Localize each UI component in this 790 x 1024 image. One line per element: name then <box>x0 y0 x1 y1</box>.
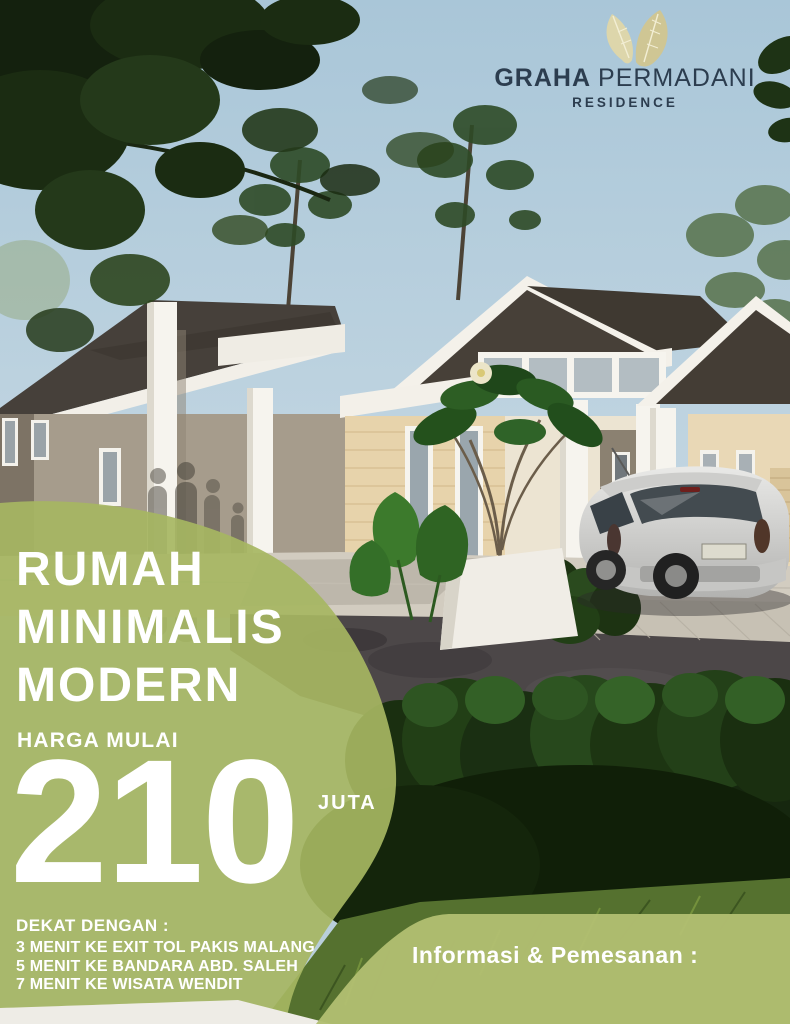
price-unit: JUTA <box>318 792 377 815</box>
flyer-poster: GRAHAPERMADANI RESIDENCE RUMAH MINIMALIS… <box>0 0 790 1024</box>
headline-line-1: RUMAH <box>16 541 285 599</box>
location-item: 7 MENIT KE WISATA WENDIT <box>16 976 315 995</box>
brand-name: GRAHAPERMADANI <box>470 64 780 93</box>
locations-block: DEKAT DENGAN : 3 MENIT KE EXIT TOL PAKIS… <box>16 916 315 995</box>
locations-title: DEKAT DENGAN : <box>16 916 315 936</box>
headline-line-2: MINIMALIS <box>16 599 285 657</box>
contact-label: Informasi & Pemesanan : <box>412 942 698 969</box>
brand-subtitle: RESIDENCE <box>470 95 780 110</box>
price-amount: 210 <box>10 734 298 910</box>
brand-leaves-icon <box>592 6 688 68</box>
location-item: 5 MENIT KE BANDARA ABD. SALEH <box>16 958 315 977</box>
brand-block: GRAHAPERMADANI RESIDENCE <box>470 64 780 110</box>
location-item: 3 MENIT KE EXIT TOL PAKIS MALANG <box>16 939 315 958</box>
headline-line-3: MODERN <box>16 657 285 715</box>
brand-name-secondary: PERMADANI <box>598 64 756 92</box>
brand-name-primary: GRAHA <box>494 64 591 92</box>
headline: RUMAH MINIMALIS MODERN <box>16 541 285 715</box>
